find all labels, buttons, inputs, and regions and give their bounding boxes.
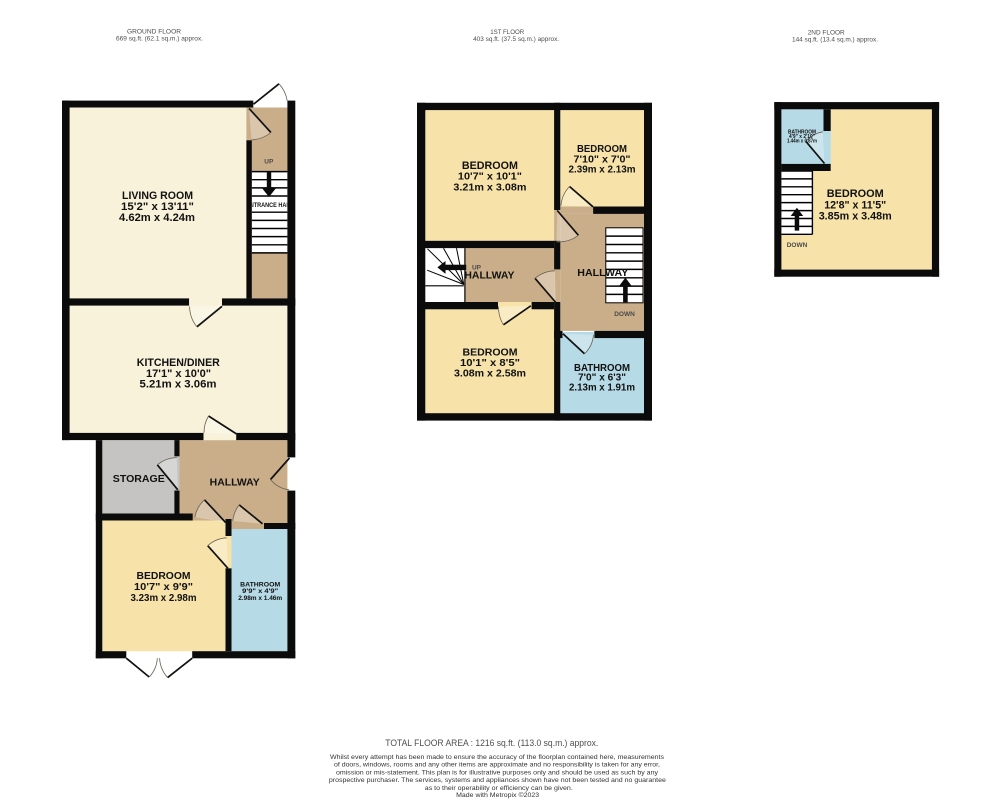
svg-text:2ND FLOOR: 2ND FLOOR [808,29,845,36]
svg-text:HALLWAY: HALLWAY [464,271,514,282]
svg-text:prospective purchaser. The ser: prospective purchaser. The services, sys… [329,777,666,784]
svg-text:144 sq.ft. (13.4 sq.m.) approx: 144 sq.ft. (13.4 sq.m.) approx. [792,37,878,44]
svg-text:omission or mis-statement. Thi: omission or mis-statement. This plan is … [336,769,659,776]
svg-text:403 sq.ft. (37.5 sq.m.) approx: 403 sq.ft. (37.5 sq.m.) approx. [473,36,559,43]
svg-text:3.08m x 2.58m: 3.08m x 2.58m [454,369,526,380]
svg-text:DOWN: DOWN [614,311,635,318]
svg-text:Whilst every attempt has been: Whilst every attempt has been made to en… [330,754,665,761]
svg-text:5.21m x 3.06m: 5.21m x 3.06m [140,379,217,391]
svg-text:10'1" x 8'5": 10'1" x 8'5" [460,358,520,369]
svg-text:HALLWAY: HALLWAY [210,478,260,489]
svg-text:BEDROOM: BEDROOM [827,188,884,200]
svg-text:UP: UP [472,265,482,272]
svg-text:2.98m x 1.46m: 2.98m x 1.46m [238,595,282,602]
svg-text:3.23m x 2.98m: 3.23m x 2.98m [131,593,197,604]
svg-text:TOTAL FLOOR AREA : 1216 sq.ft.: TOTAL FLOOR AREA : 1216 sq.ft. (113.0 sq… [385,738,598,748]
svg-text:1.44m x 0.87m: 1.44m x 0.87m [787,139,817,145]
svg-text:BEDROOM: BEDROOM [137,571,191,582]
svg-text:2.39m x 2.13m: 2.39m x 2.13m [569,165,636,176]
svg-text:ENTRANCE HALL: ENTRANCE HALL [246,202,293,209]
svg-text:as to their operability or eff: as to their operability or efficiency ca… [425,785,573,792]
svg-text:STORAGE: STORAGE [113,474,165,485]
svg-text:3.85m x 3.48m: 3.85m x 3.48m [819,210,892,222]
svg-text:Made with Metropix ©2023: Made with Metropix ©2023 [456,791,539,799]
svg-text:2.13m x 1.91m: 2.13m x 1.91m [569,382,635,393]
svg-text:4.62m x 4.24m: 4.62m x 4.24m [119,212,195,224]
svg-text:of doors, windows, rooms and a: of doors, windows, rooms and any other i… [334,762,660,769]
svg-text:UP: UP [264,159,274,166]
svg-text:669 sq.ft. (62.1 sq.m.) approx: 669 sq.ft. (62.1 sq.m.) approx. [116,35,203,42]
svg-text:10'7" x 9'9": 10'7" x 9'9" [134,582,193,593]
svg-text:3.21m x 3.08m: 3.21m x 3.08m [453,181,526,193]
svg-text:HALLWAY: HALLWAY [577,268,628,279]
svg-text:15'2" x 13'11": 15'2" x 13'11" [121,201,194,213]
svg-text:DOWN: DOWN [787,242,808,249]
